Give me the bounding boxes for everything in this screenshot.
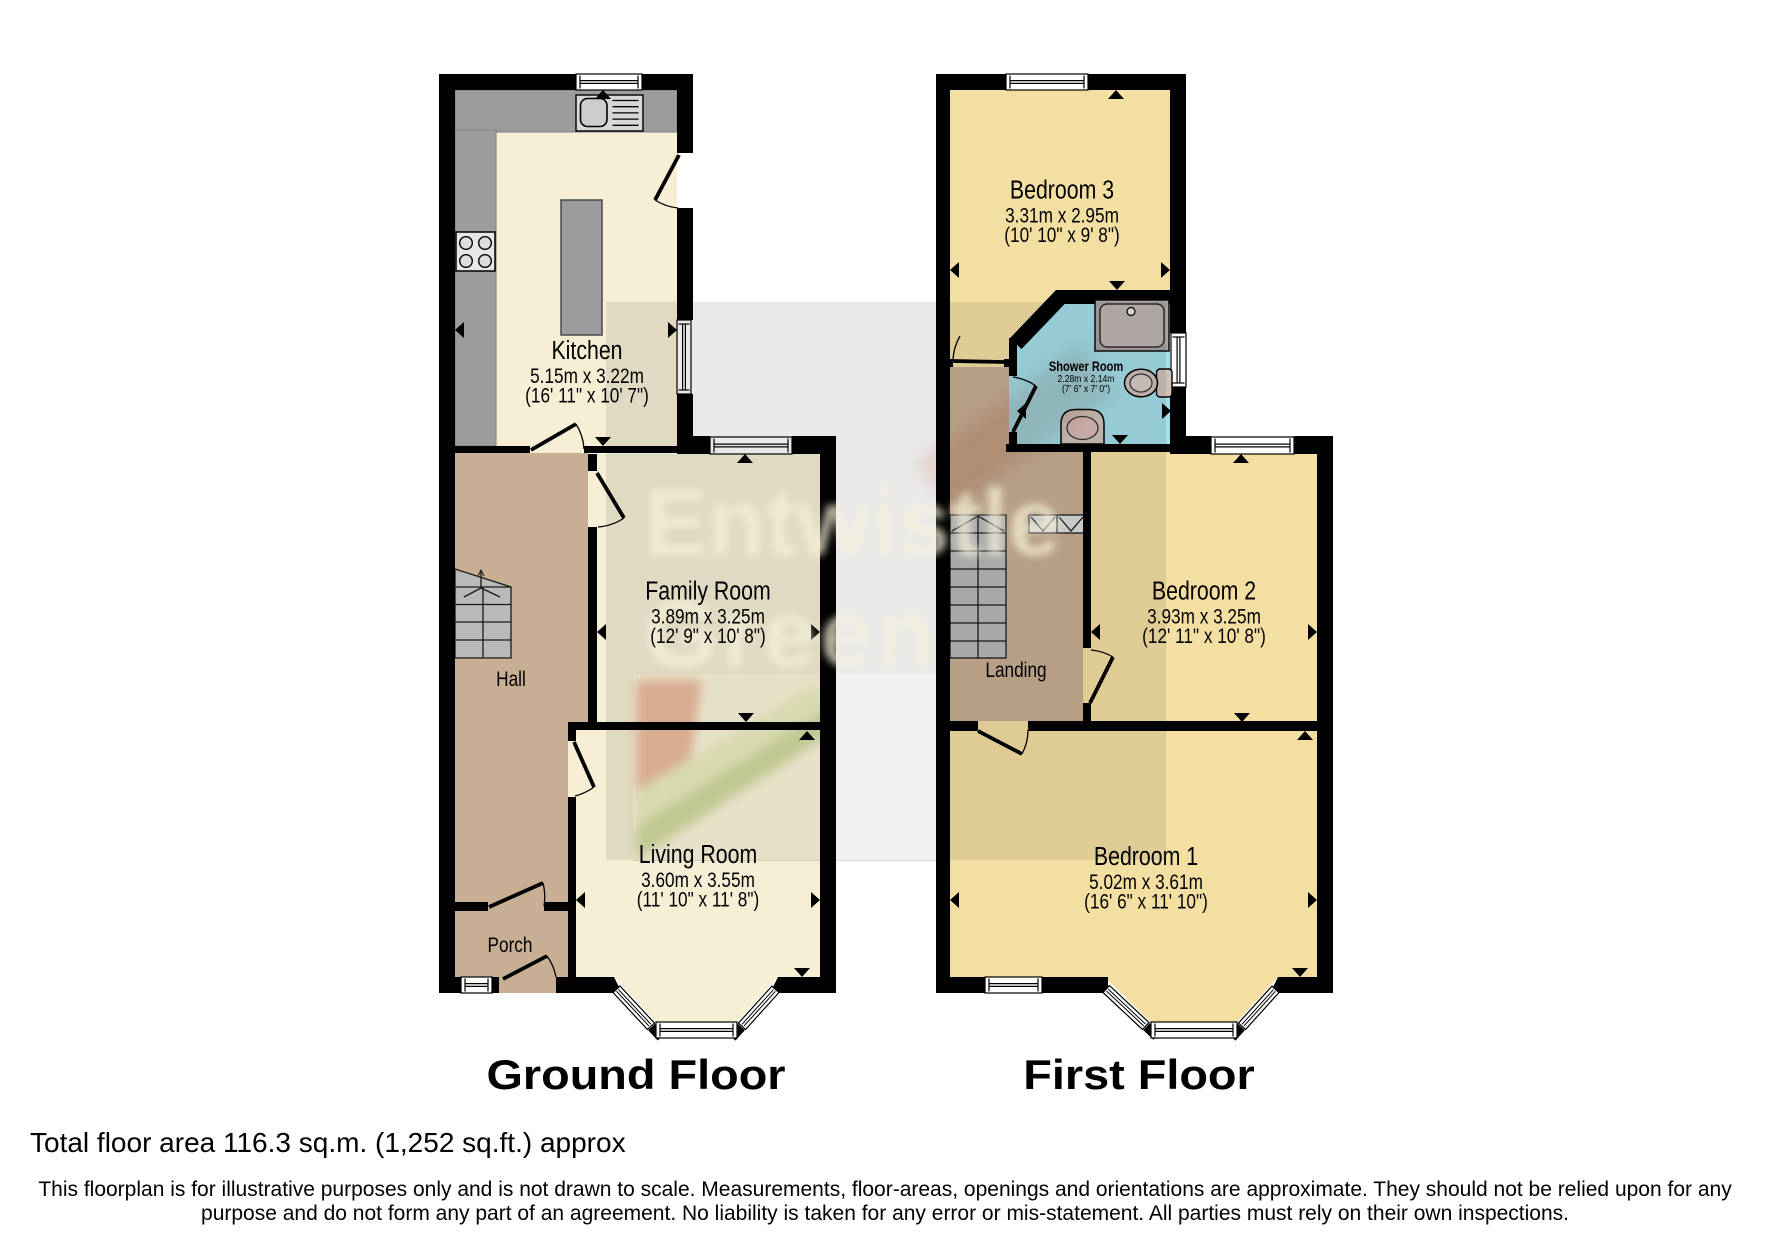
svg-text:First Floor: First Floor (1023, 1052, 1254, 1098)
svg-text:Landing: Landing (985, 660, 1046, 683)
svg-text:(10' 10" x 9' 8"): (10' 10" x 9' 8") (1004, 225, 1119, 248)
svg-text:(16' 6" x 11' 10"): (16' 6" x 11' 10") (1084, 891, 1208, 914)
svg-text:Bedroom 3: Bedroom 3 (1010, 176, 1114, 206)
svg-text:purpose and do not form any pa: purpose and do not form any part of an a… (201, 1202, 1569, 1225)
svg-text:Porch: Porch (488, 935, 533, 958)
svg-text:This floorplan is for illustra: This floorplan is for illustrative purpo… (38, 1178, 1732, 1201)
svg-text:Living Room: Living Room (639, 840, 757, 870)
svg-text:(7' 6" x 7' 0"): (7' 6" x 7' 0") (1062, 383, 1110, 395)
svg-text:(12' 9" x 10' 8"): (12' 9" x 10' 8") (650, 626, 765, 649)
svg-text:Ground Floor: Ground Floor (486, 1052, 785, 1098)
svg-text:(11' 10" x 11' 8"): (11' 10" x 11' 8") (637, 889, 759, 912)
svg-text:Total floor area 116.3 sq.m. (: Total floor area 116.3 sq.m. (1,252 sq.f… (30, 1127, 626, 1158)
svg-text:Shower Room: Shower Room (1049, 359, 1123, 374)
svg-text:Kitchen: Kitchen (551, 336, 622, 366)
svg-text:(12' 11" x 10' 8"): (12' 11" x 10' 8") (1142, 626, 1266, 649)
svg-text:(16' 11" x 10' 7"): (16' 11" x 10' 7") (525, 385, 649, 408)
svg-text:Entwistle: Entwistle (644, 470, 1061, 576)
svg-text:Bedroom 1: Bedroom 1 (1094, 842, 1198, 872)
svg-text:Family Room: Family Room (645, 577, 771, 607)
svg-text:Bedroom 2: Bedroom 2 (1152, 577, 1256, 607)
svg-text:Hall: Hall (496, 669, 526, 692)
